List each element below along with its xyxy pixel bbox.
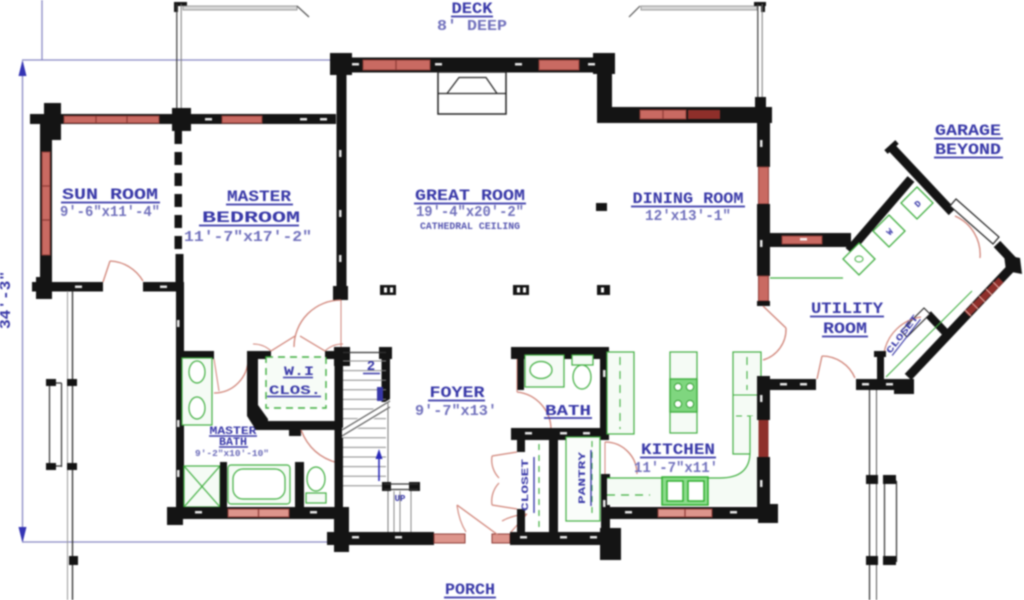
svg-text:KITCHEN: KITCHEN — [641, 441, 715, 459]
svg-text:9'-6"x11'-4": 9'-6"x11'-4" — [60, 204, 160, 221]
svg-text:ROOM: ROOM — [823, 320, 867, 338]
svg-text:CLOSET: CLOSET — [521, 459, 532, 511]
svg-text:12'x13'-1": 12'x13'-1" — [645, 208, 731, 225]
svg-text:34'-3": 34'-3" — [0, 271, 15, 329]
svg-text:GARAGE: GARAGE — [935, 122, 1001, 140]
svg-text:DECK: DECK — [452, 0, 493, 18]
svg-text:FOYER: FOYER — [430, 384, 485, 402]
svg-text:PORCH: PORCH — [445, 581, 495, 599]
svg-text:2: 2 — [367, 359, 375, 375]
svg-text:UTILITY: UTILITY — [811, 300, 883, 318]
svg-text:11'-7"x17'-2": 11'-7"x17'-2" — [184, 229, 312, 246]
svg-text:SUN ROOM: SUN ROOM — [62, 186, 158, 204]
svg-text:CATHEDRAL CEILING: CATHEDRAL CEILING — [420, 221, 520, 233]
svg-text:PANTRY: PANTRY — [578, 452, 589, 504]
svg-text:19'-4"x20'-2": 19'-4"x20'-2" — [416, 204, 524, 221]
svg-text:MASTER: MASTER — [227, 188, 291, 206]
svg-text:BEDROOM: BEDROOM — [202, 209, 300, 227]
svg-text:DINING ROOM: DINING ROOM — [633, 190, 744, 208]
svg-text:8' DEEP: 8' DEEP — [437, 18, 507, 35]
svg-text:11'-7"x11': 11'-7"x11' — [634, 460, 718, 477]
svg-text:GREAT ROOM: GREAT ROOM — [415, 187, 525, 205]
svg-text:BEYOND: BEYOND — [935, 141, 1001, 159]
svg-text:9'-2"x10'-10": 9'-2"x10'-10" — [195, 449, 269, 459]
svg-text:9'-7"x13': 9'-7"x13' — [415, 403, 497, 420]
